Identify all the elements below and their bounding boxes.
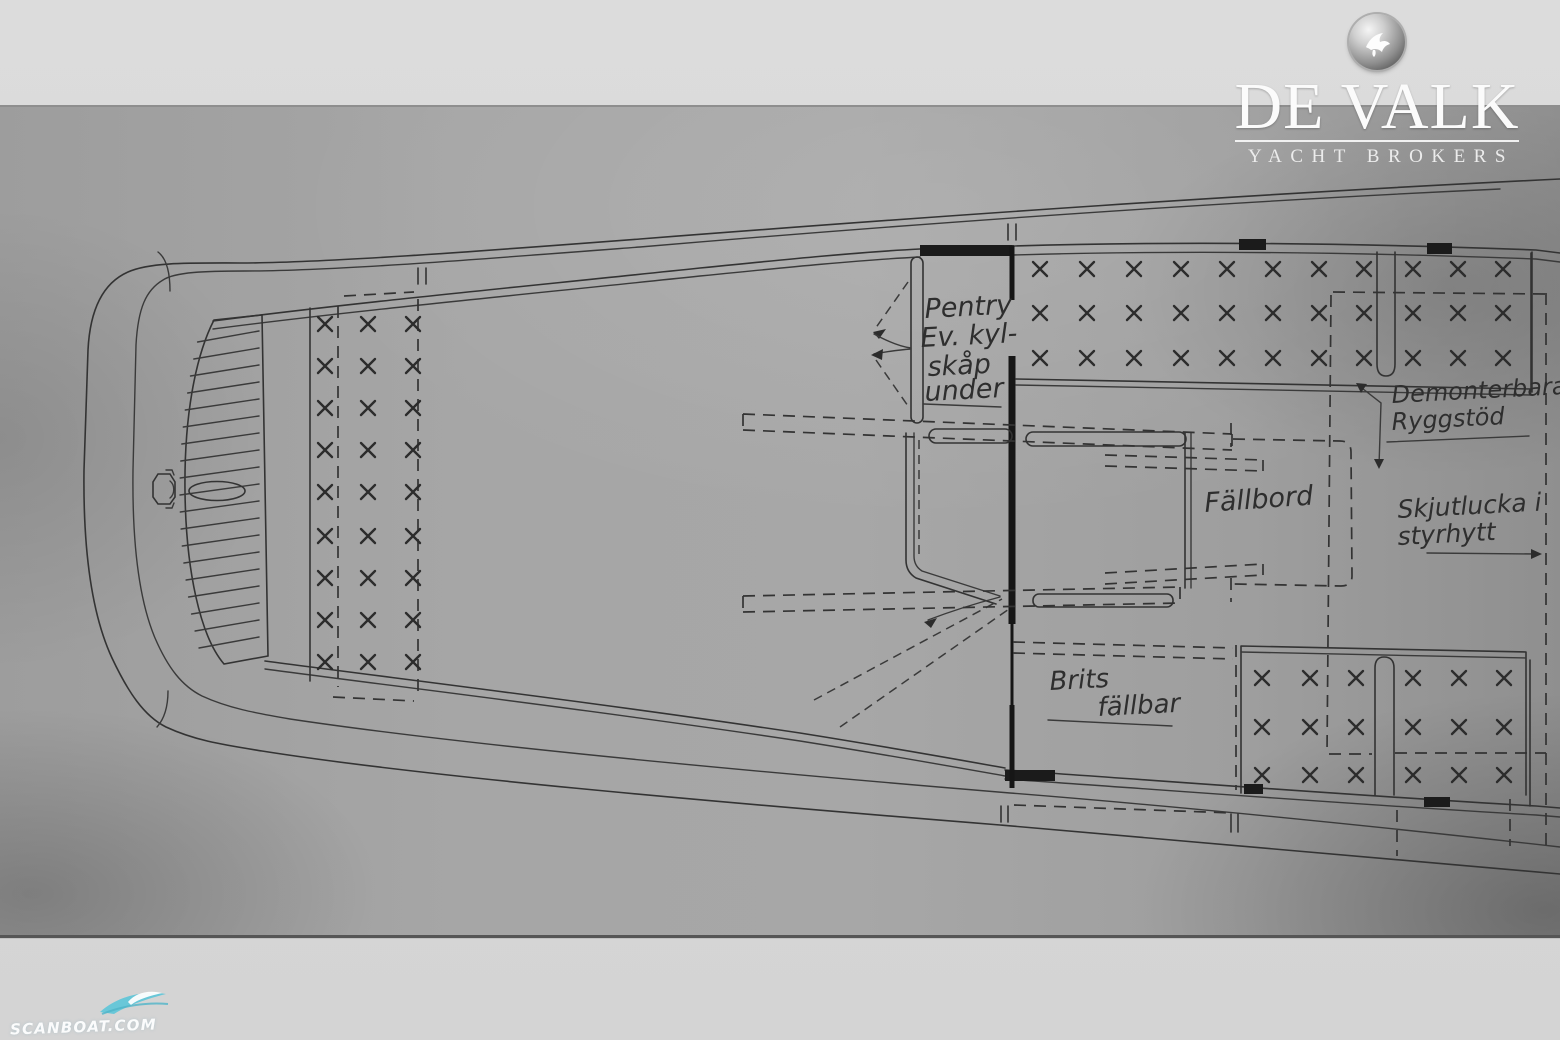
logo-subtitle: YACHT BROKERS xyxy=(1227,146,1527,168)
fore-hatch-handle xyxy=(189,482,245,501)
removable-backrest-bottom xyxy=(1375,657,1394,795)
label-pentry-line4: under xyxy=(924,373,1006,408)
logo-rule xyxy=(1235,140,1519,142)
grating-slats xyxy=(180,331,259,648)
companionway-steps xyxy=(814,433,1009,727)
logo-title: DE VALK xyxy=(1227,78,1527,136)
label-skjutlucka-line2: styrhytt xyxy=(1397,517,1498,551)
label-pentry-line2: Ev. kyl- xyxy=(920,318,1018,354)
label-brits-line2: fällbar xyxy=(1097,689,1183,723)
foredeck-grating xyxy=(180,315,268,664)
bow-winch-fitting xyxy=(153,470,175,508)
annotation-leaders xyxy=(924,383,1542,726)
label-fallbord: Fällbord xyxy=(1203,480,1315,519)
galley-counter xyxy=(871,257,923,423)
falcon-bird-icon xyxy=(1349,14,1405,70)
labels: Pentry Ev. kyl- skåp under Fällbord Demo… xyxy=(920,289,1560,723)
devalk-logo: DE VALK YACHT BROKERS xyxy=(1227,14,1527,168)
station-marks xyxy=(418,224,1238,832)
scanboat-watermark: SCANBOAT.COM xyxy=(8,988,198,1040)
watermark-text: SCANBOAT.COM xyxy=(10,1015,157,1038)
galley-top-wall xyxy=(920,245,1014,256)
label-demonterbara-line2: Ryggstöd xyxy=(1391,402,1506,436)
removable-backrest-top xyxy=(1377,252,1395,376)
listing-photo-page: Pentry Ev. kyl- skåp under Fällbord Demo… xyxy=(0,0,1560,1040)
hull-outline xyxy=(84,179,1560,874)
wave-swoosh-icon xyxy=(98,988,170,1016)
